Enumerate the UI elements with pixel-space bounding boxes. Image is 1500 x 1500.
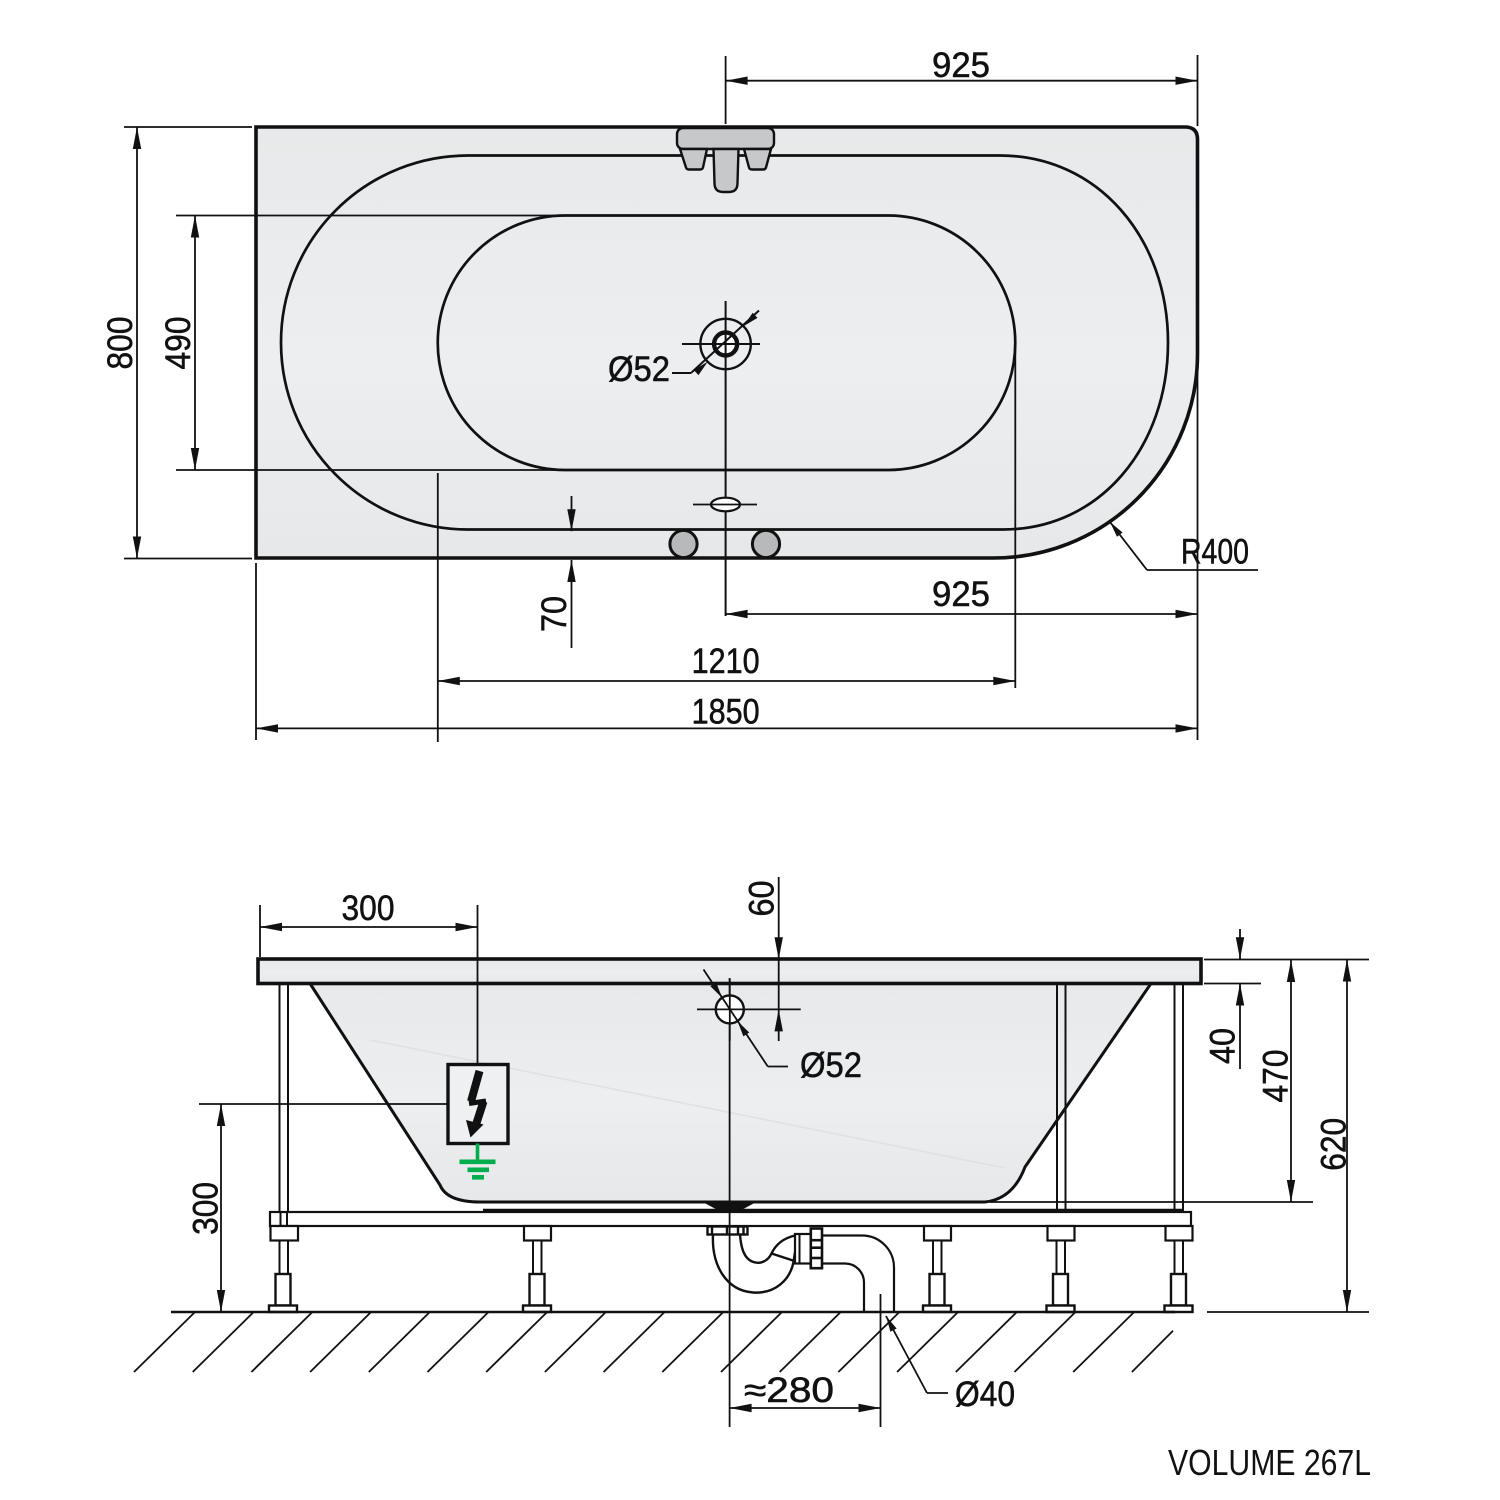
- svg-text:800: 800: [101, 317, 140, 370]
- svg-text:70: 70: [535, 596, 574, 632]
- svg-text:Ø52: Ø52: [608, 350, 670, 389]
- svg-text:VOLUME 267L: VOLUME 267L: [1168, 1442, 1371, 1483]
- svg-text:620: 620: [1315, 1118, 1354, 1171]
- svg-text:40: 40: [1204, 1028, 1243, 1064]
- svg-text:470: 470: [1257, 1050, 1296, 1103]
- svg-text:60: 60: [743, 881, 782, 917]
- svg-text:Ø40: Ø40: [955, 1375, 1015, 1414]
- svg-text:Ø52: Ø52: [800, 1046, 862, 1085]
- svg-text:1210: 1210: [692, 642, 760, 681]
- svg-text:925: 925: [932, 575, 990, 614]
- svg-text:925: 925: [932, 46, 990, 85]
- svg-text:300: 300: [186, 1182, 225, 1235]
- svg-text:490: 490: [159, 317, 198, 370]
- svg-text:≈280: ≈280: [744, 1371, 834, 1410]
- svg-text:1850: 1850: [692, 693, 760, 732]
- svg-text:R400: R400: [1181, 533, 1249, 572]
- svg-text:300: 300: [342, 889, 395, 928]
